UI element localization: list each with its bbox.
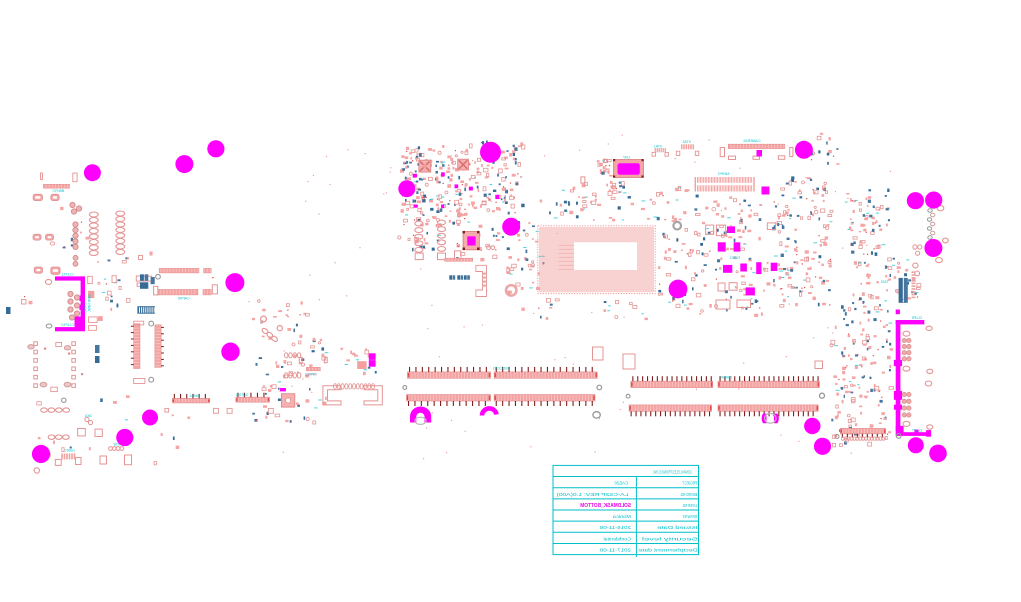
svg-text:LA-C52P REV: 1.0(A00): LA-C52P REV: 1.0(A00) — [556, 492, 628, 497]
svg-text:BOARD NO.: BOARD NO. — [680, 492, 697, 497]
svg-text:CAMERA1: CAMERA1 — [743, 139, 760, 143]
svg-text:34RPO: 34RPO — [718, 172, 730, 176]
svg-text:CL1P10: CL1P10 — [61, 323, 73, 327]
svg-text:CA520: CA520 — [614, 481, 628, 486]
svg-text:2016-11-08: 2016-11-08 — [599, 525, 631, 530]
svg-text:1UB0C: 1UB0C — [64, 449, 75, 453]
svg-text:LAYER NO.: LAYER NO. — [682, 503, 697, 508]
svg-text:CAP96: CAP96 — [178, 296, 189, 300]
svg-text:CL1P11: CL1P11 — [61, 272, 73, 276]
svg-text:FUSE2: FUSE2 — [730, 256, 741, 260]
svg-text:SOLDMASK_BOTTOM: SOLDMASK_BOTTOM — [580, 503, 631, 509]
svg-text:XTA2: XTA2 — [682, 140, 691, 144]
svg-text:Security level: Security level — [642, 536, 698, 541]
svg-text:CL1P8: CL1P8 — [912, 316, 922, 320]
svg-text:PROJECT: PROJECT — [682, 481, 697, 486]
svg-text:JWB4 W/B3: JWB4 W/B3 — [88, 294, 92, 312]
svg-text:Confidential: Confidential — [604, 536, 632, 541]
svg-text:DIMM0: DIMM0 — [721, 376, 733, 380]
svg-text:BBHYC: BBHYC — [52, 189, 64, 193]
svg-text:DRAW BY: DRAW BY — [682, 514, 697, 519]
svg-text:SSDCON1: SSDCON1 — [493, 366, 510, 370]
svg-text:3001: 3001 — [84, 414, 92, 418]
svg-text:Decipherment date: Decipherment date — [638, 548, 698, 553]
svg-text:T420: T420 — [881, 280, 889, 284]
svg-text:COMPAL ELECTRONICS, INC.: COMPAL ELECTRONICS, INC. — [652, 470, 692, 475]
svg-text:CL1P7: CL1P7 — [912, 428, 922, 432]
svg-text:XTA1: XTA1 — [654, 145, 663, 149]
svg-text:34RTP1: 34RTP1 — [236, 393, 248, 397]
svg-text:Monica: Monica — [612, 514, 631, 519]
svg-text:2017-11-08: 2017-11-08 — [599, 548, 631, 553]
svg-text:U47: U47 — [623, 155, 630, 159]
svg-text:RPREC: RPREC — [304, 372, 316, 376]
svg-text:Issued Date: Issued Date — [656, 525, 697, 530]
svg-text:34Rx1: 34Rx1 — [189, 394, 199, 398]
